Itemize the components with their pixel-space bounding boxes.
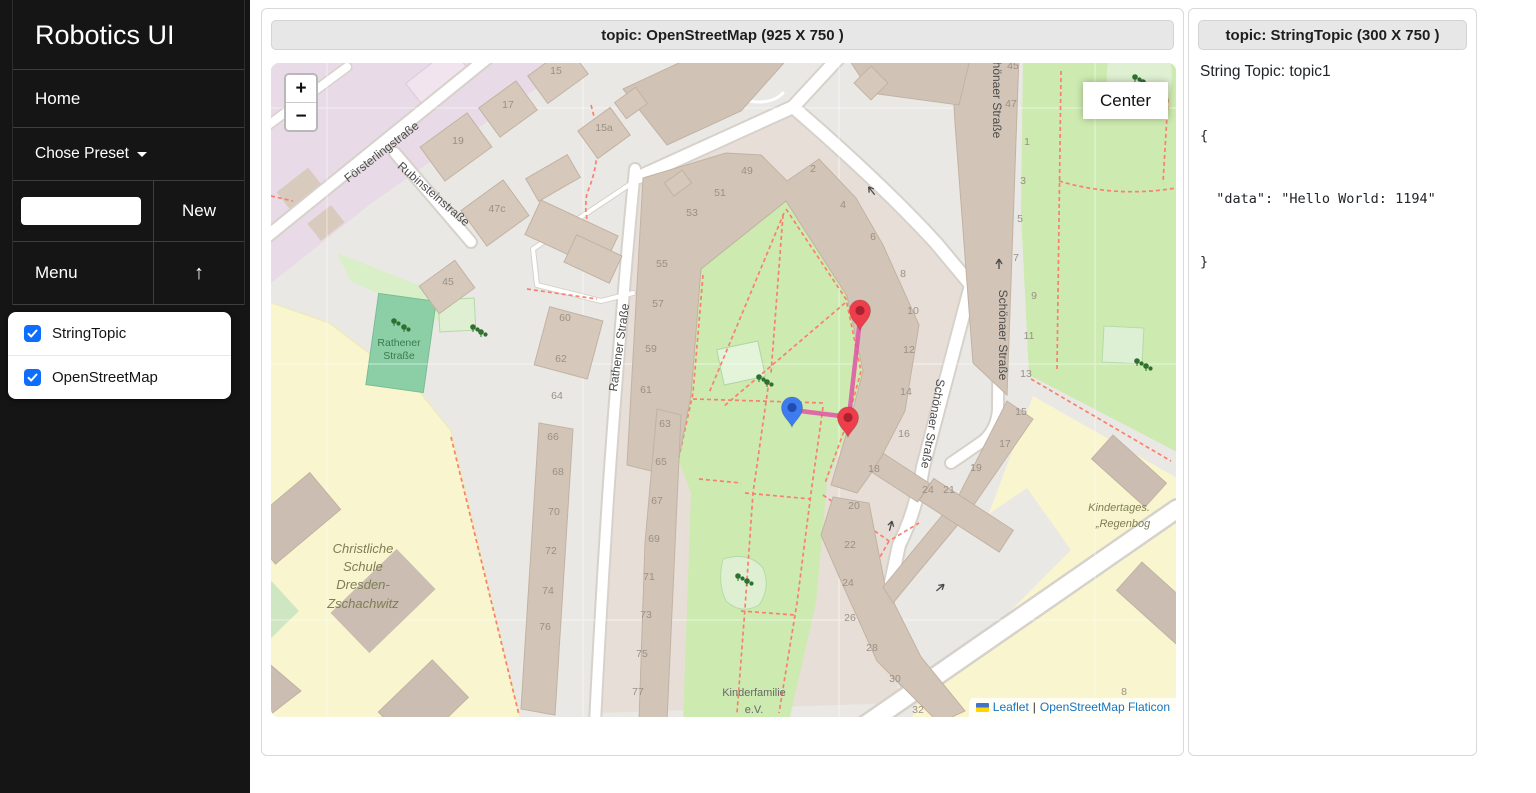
svg-text:49: 49 (741, 165, 753, 177)
svg-text:8: 8 (900, 268, 906, 280)
svg-text:19: 19 (452, 135, 464, 147)
svg-text:21: 21 (943, 484, 955, 496)
checkbox-checked-icon[interactable] (24, 325, 41, 342)
svg-text:59: 59 (645, 343, 657, 355)
svg-text:45: 45 (442, 276, 454, 288)
ukraine-flag-icon (976, 703, 989, 712)
menu-cell[interactable]: Menu (13, 242, 154, 304)
svg-text:e.V.: e.V. (745, 704, 764, 716)
svg-text:13: 13 (1020, 368, 1032, 380)
svg-text:75: 75 (636, 648, 648, 660)
svg-text:17: 17 (502, 99, 514, 111)
svg-text:20: 20 (848, 500, 860, 512)
svg-text:22: 22 (844, 539, 856, 551)
svg-text:53: 53 (686, 207, 698, 219)
map-attribution: Leaflet | OpenStreetMap Flaticon (969, 698, 1176, 717)
attribution-separator: | (1033, 700, 1036, 714)
new-preset-row: New (13, 181, 244, 242)
svg-text:„Regenbog: „Regenbog (1095, 518, 1151, 530)
osm-link[interactable]: OpenStreetMap Flaticon (1040, 700, 1170, 714)
svg-text:28: 28 (866, 642, 878, 654)
svg-text:51: 51 (714, 187, 726, 199)
svg-text:12: 12 (903, 344, 915, 356)
home-label: Home (35, 89, 80, 109)
svg-text:73: 73 (640, 609, 652, 621)
zoom-out-button[interactable]: − (286, 102, 316, 130)
svg-text:Kindertages.: Kindertages. (1088, 502, 1150, 514)
leaflet-map[interactable]: 15171915a47c4549515355575961636567697173… (271, 63, 1176, 717)
stringtopic-panel: topic: StringTopic (300 X 750 ) String T… (1188, 8, 1477, 756)
preset-input-cell (13, 181, 154, 241)
svg-text:8: 8 (1121, 686, 1127, 698)
preset-dropdown[interactable]: Chose Preset (13, 128, 244, 181)
svg-text:Schule: Schule (343, 559, 383, 574)
svg-text:19: 19 (970, 462, 982, 474)
svg-text:32: 32 (912, 704, 924, 716)
sidebar: Robotics UI Home Chose Preset New Menu ↑… (0, 0, 250, 793)
map-canvas[interactable]: 15171915a47c4549515355575961636567697173… (271, 63, 1176, 717)
svg-text:Zschachwitz: Zschachwitz (326, 596, 399, 611)
svg-text:64: 64 (551, 390, 563, 402)
svg-text:Dresden-: Dresden- (336, 577, 390, 592)
new-button[interactable]: New (154, 181, 244, 241)
openstreetmap-panel: topic: OpenStreetMap (925 X 750 ) (261, 8, 1184, 756)
svg-text:Rathener: Rathener (377, 337, 421, 349)
svg-text:15: 15 (1015, 406, 1027, 418)
sidebar-item-home[interactable]: Home (13, 70, 244, 128)
string-panel-body: String Topic: topic1 { "data": "Hello Wo… (1189, 50, 1476, 315)
topics-panel: StringTopic OpenStreetMap (8, 312, 231, 399)
svg-text:14: 14 (900, 386, 912, 398)
svg-text:72: 72 (545, 545, 557, 557)
svg-text:26: 26 (844, 612, 856, 624)
svg-text:18: 18 (868, 463, 880, 475)
svg-text:5: 5 (1017, 213, 1023, 225)
collapse-up-button[interactable]: ↑ (154, 242, 244, 304)
string-topic-line: String Topic: topic1 (1200, 63, 1465, 81)
content-area: topic: OpenStreetMap (925 X 750 ) (250, 0, 1536, 793)
topic-label: OpenStreetMap (52, 369, 158, 386)
svg-text:24: 24 (842, 577, 854, 589)
svg-text:17: 17 (999, 438, 1011, 450)
svg-text:7: 7 (1013, 252, 1019, 264)
svg-text:24: 24 (922, 484, 934, 496)
topic-label: StringTopic (52, 325, 126, 342)
svg-text:74: 74 (542, 585, 554, 597)
svg-text:57: 57 (652, 298, 664, 310)
svg-text:Kinderfamilie: Kinderfamilie (722, 687, 786, 699)
svg-text:65: 65 (655, 456, 667, 468)
sidebar-nav: Robotics UI Home Chose Preset New Menu ↑ (12, 0, 245, 305)
svg-text:3: 3 (1020, 175, 1026, 187)
svg-text:45: 45 (1007, 63, 1019, 72)
svg-text:67: 67 (651, 495, 663, 507)
svg-text:Schönaer Straße: Schönaer Straße (990, 63, 1004, 139)
string-topic-json: { "data": "Hello World: 1194" } (1200, 84, 1465, 315)
zoom-control: + − (284, 73, 318, 132)
svg-text:6: 6 (870, 231, 876, 243)
preset-name-input[interactable] (21, 197, 141, 225)
topic-checkbox-row-openstreetmap[interactable]: OpenStreetMap (8, 355, 231, 399)
svg-text:Straße: Straße (383, 350, 415, 362)
svg-text:2: 2 (810, 163, 816, 175)
svg-text:Christliche: Christliche (333, 541, 394, 556)
app-title: Robotics UI (13, 0, 244, 70)
topic-checkbox-row-stringtopic[interactable]: StringTopic (8, 312, 231, 355)
svg-text:47: 47 (1005, 98, 1017, 110)
svg-text:62: 62 (555, 353, 567, 365)
map-panel-header: topic: OpenStreetMap (925 X 750 ) (271, 20, 1174, 50)
svg-text:55: 55 (656, 258, 668, 270)
svg-text:77: 77 (632, 686, 644, 698)
svg-text:70: 70 (548, 506, 560, 518)
svg-text:15a: 15a (595, 122, 613, 134)
checkbox-checked-icon[interactable] (24, 369, 41, 386)
caret-down-icon (137, 152, 147, 157)
svg-text:63: 63 (659, 418, 671, 430)
svg-text:16: 16 (898, 428, 910, 440)
svg-text:11: 11 (1024, 330, 1035, 342)
svg-text:Schönaer Straße: Schönaer Straße (996, 290, 1010, 381)
svg-text:60: 60 (559, 312, 571, 324)
svg-text:76: 76 (539, 621, 551, 633)
svg-text:61: 61 (640, 384, 652, 396)
svg-text:47c: 47c (489, 203, 506, 215)
svg-text:66: 66 (547, 431, 559, 443)
svg-text:68: 68 (552, 466, 564, 478)
svg-text:71: 71 (643, 571, 655, 583)
leaflet-link[interactable]: Leaflet (993, 700, 1029, 714)
preset-label: Chose Preset (35, 145, 129, 163)
svg-text:69: 69 (648, 533, 660, 545)
svg-text:4: 4 (840, 199, 846, 211)
center-button[interactable]: Center (1083, 82, 1168, 119)
menu-label: Menu (13, 263, 78, 283)
svg-text:9: 9 (1031, 290, 1037, 302)
menu-row: Menu ↑ (13, 242, 244, 305)
string-panel-header: topic: StringTopic (300 X 750 ) (1198, 20, 1467, 50)
svg-text:30: 30 (889, 673, 901, 685)
svg-text:1: 1 (1024, 136, 1030, 148)
svg-text:10: 10 (907, 305, 919, 317)
zoom-in-button[interactable]: + (286, 75, 316, 102)
svg-text:15: 15 (550, 65, 562, 77)
